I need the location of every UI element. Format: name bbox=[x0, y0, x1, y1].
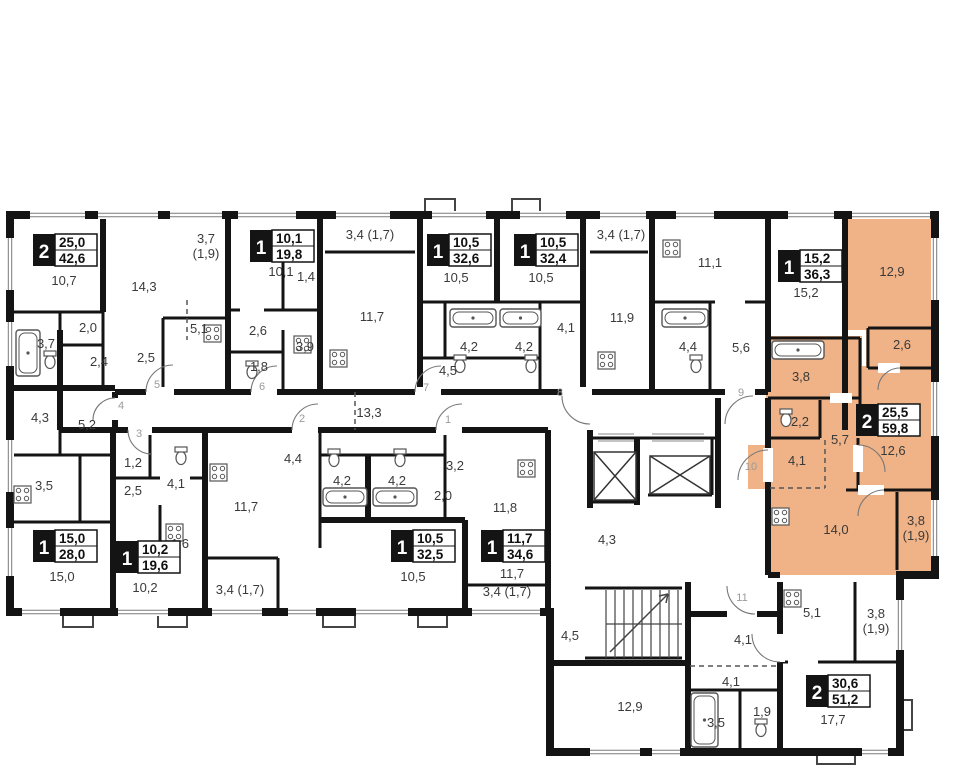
apartment-living-area: 30,6 bbox=[832, 676, 859, 691]
room-area-label: 11,7 bbox=[234, 499, 258, 514]
door-number-label: 5 bbox=[154, 379, 160, 391]
bathtub-icon bbox=[373, 488, 417, 506]
door-number-label: 4 bbox=[118, 400, 124, 412]
apartment-living-area: 10,2 bbox=[142, 542, 168, 557]
room-area-label: 12,9 bbox=[879, 264, 904, 279]
room-area-label: 4,2 bbox=[460, 339, 478, 354]
room-area-label: 4,3 bbox=[598, 532, 616, 547]
apartment-total-area: 32,5 bbox=[417, 547, 444, 562]
apartment-living-area: 10,5 bbox=[417, 531, 444, 546]
toilet-icon bbox=[175, 447, 187, 465]
apartment-badge[interactable]: 225,559,8 bbox=[856, 404, 920, 436]
room-area-label: 3,8 bbox=[792, 369, 810, 384]
room-area-label: 10,5 bbox=[443, 270, 468, 285]
apartment-living-area: 10,5 bbox=[453, 235, 480, 250]
apartment-total-area: 32,6 bbox=[453, 251, 480, 266]
room-area-label: 15,0 bbox=[49, 569, 74, 584]
bathtub-icon bbox=[450, 309, 496, 327]
room-area-label: 3,9 bbox=[296, 339, 314, 354]
room-area-label: 14,0 bbox=[823, 522, 848, 537]
apartment-rooms-count: 2 bbox=[39, 242, 50, 263]
apartment-badge[interactable]: 110,219,6 bbox=[116, 541, 180, 573]
apartment-living-area: 25,0 bbox=[59, 235, 85, 250]
room-area-label: 5,1 bbox=[190, 321, 208, 336]
apartment-total-area: 19,8 bbox=[276, 247, 303, 262]
room-area-label: 1,4 bbox=[297, 269, 315, 284]
apartment-living-area: 25,5 bbox=[882, 405, 909, 420]
bathtub-icon bbox=[772, 341, 824, 359]
apartment-rooms-count: 1 bbox=[39, 538, 50, 559]
room-area-label: 2,2 bbox=[791, 414, 809, 429]
room-area-label: 3,7 bbox=[37, 336, 55, 351]
room-area-label: 3,2 bbox=[446, 458, 464, 473]
apartment-rooms-count: 1 bbox=[397, 538, 408, 559]
room-area-label: 4,4 bbox=[679, 339, 697, 354]
room-area-label: 11,1 bbox=[698, 255, 722, 270]
room-area-label: 3,4 (1,7) bbox=[216, 582, 264, 597]
room-area-label: 4,4 bbox=[284, 451, 302, 466]
door-number-label: 1 bbox=[445, 414, 451, 426]
room-area-label: 2,5 bbox=[137, 350, 155, 365]
room-area-label: 3,4 (1,7) bbox=[597, 227, 645, 242]
apartment-living-area: 11,7 bbox=[507, 531, 533, 546]
room-area-label: 10,5 bbox=[400, 569, 425, 584]
bathtub-icon bbox=[662, 309, 708, 327]
door-number-label: 3 bbox=[136, 428, 142, 440]
room-area-label: 11,8 bbox=[493, 500, 517, 515]
room-area-label: 4,5 bbox=[561, 628, 579, 643]
apartment-living-area: 15,2 bbox=[804, 251, 830, 266]
bathtub-icon bbox=[323, 488, 367, 506]
room-area-label: 2,6 bbox=[249, 323, 267, 338]
apartment-living-area: 10,5 bbox=[540, 235, 567, 250]
apartment-rooms-count: 1 bbox=[122, 549, 133, 570]
apartment-badge[interactable]: 110,119,8 bbox=[250, 230, 314, 262]
apartment-total-area: 34,6 bbox=[507, 547, 534, 562]
room-area-label: 3,4 (1,7) bbox=[346, 227, 394, 242]
apartment-rooms-count: 1 bbox=[487, 538, 498, 559]
room-area-label: 3,5 bbox=[707, 715, 725, 730]
apartment-badge[interactable]: 110,532,5 bbox=[391, 530, 455, 562]
apartment-total-area: 28,0 bbox=[59, 547, 85, 562]
room-area-label: 10,2 bbox=[132, 580, 157, 595]
room-area-label: 13,3 bbox=[356, 405, 381, 420]
bathtub-icon bbox=[500, 309, 541, 327]
apartment-living-area: 15,0 bbox=[59, 531, 85, 546]
door-number-label: 6 bbox=[259, 381, 265, 393]
room-area-label: 10,1 bbox=[268, 264, 293, 279]
door-number-label: 11 bbox=[736, 592, 747, 604]
stove-icon bbox=[210, 464, 227, 481]
apartment-badge[interactable]: 110,532,6 bbox=[427, 234, 491, 266]
apartment-badge[interactable]: 110,532,4 bbox=[514, 234, 578, 266]
room-area-label: 3,8(1,9) bbox=[863, 606, 890, 636]
toilet-icon bbox=[690, 355, 702, 373]
stove-icon bbox=[330, 350, 347, 367]
room-area-label: 4,1 bbox=[557, 320, 575, 335]
room-area-label: 4,3 bbox=[31, 410, 49, 425]
room-area-label: 1,8 bbox=[250, 359, 268, 374]
apartment-total-area: 36,3 bbox=[804, 267, 831, 282]
room-area-label: 2,0 bbox=[79, 320, 97, 335]
room-area-label: 2,0 bbox=[434, 488, 452, 503]
apartment-rooms-count: 2 bbox=[862, 412, 873, 433]
room-area-label: 3,5 bbox=[35, 478, 53, 493]
floor-plan-canvas: 10,714,33,7(1,9)2,03,72,42,55,110,11,42,… bbox=[0, 0, 960, 780]
door-number-label: 10 bbox=[745, 461, 757, 473]
apartment-total-area: 19,6 bbox=[142, 558, 169, 573]
toilet-icon bbox=[755, 719, 767, 737]
room-area-label: 2,6 bbox=[893, 337, 911, 352]
room-area-label: 5,6 bbox=[732, 340, 750, 355]
room-area-label: 12,6 bbox=[880, 443, 905, 458]
apartment-rooms-count: 2 bbox=[812, 683, 823, 704]
toilet-icon bbox=[328, 449, 340, 467]
room-area-label: 10,7 bbox=[51, 273, 76, 288]
apartment-badge[interactable]: 230,651,2 bbox=[806, 675, 870, 707]
room-area-label: 4,1 bbox=[788, 453, 806, 468]
room-area-label: 2,5 bbox=[124, 483, 142, 498]
stove-icon bbox=[14, 486, 31, 503]
room-area-label: 10,5 bbox=[528, 270, 553, 285]
room-area-label: 4,1 bbox=[167, 476, 185, 491]
stove-icon bbox=[772, 508, 789, 525]
room-area-label: 2,4 bbox=[90, 354, 108, 369]
elevator-icon bbox=[594, 434, 710, 500]
stove-icon bbox=[663, 240, 680, 257]
room-area-label: 11,7 bbox=[500, 566, 524, 581]
stove-icon bbox=[598, 352, 615, 369]
room-area-label: 5,7 bbox=[831, 432, 849, 447]
door-number-label: 2 bbox=[299, 413, 305, 425]
apartment-badge[interactable]: 115,236,3 bbox=[778, 250, 842, 282]
room-area-label: 4,2 bbox=[333, 473, 351, 488]
apartment-total-area: 42,6 bbox=[59, 251, 86, 266]
apartment-badge[interactable]: 111,734,6 bbox=[481, 530, 545, 562]
stove-icon bbox=[518, 460, 535, 477]
room-area-label: 12,9 bbox=[617, 699, 642, 714]
apartment-rooms-count: 1 bbox=[520, 242, 531, 263]
room-area-label: 4,2 bbox=[388, 473, 406, 488]
floor-plan-page: 10,714,33,7(1,9)2,03,72,42,55,110,11,42,… bbox=[0, 0, 960, 780]
apartment-rooms-count: 1 bbox=[433, 242, 444, 263]
room-area-label: 3,4 (1,7) bbox=[483, 584, 531, 599]
room-area-label: 5,2 bbox=[78, 417, 96, 432]
room-area-label: 11,7 bbox=[360, 309, 384, 324]
apartment-badge[interactable]: 225,042,6 bbox=[33, 234, 97, 266]
room-area-label: 4,5 bbox=[439, 363, 457, 378]
room-area-label: 11,9 bbox=[610, 310, 634, 325]
room-area-label: 4,2 bbox=[515, 339, 533, 354]
room-area-label: 1,9 bbox=[753, 704, 771, 719]
stairs-icon bbox=[606, 590, 682, 658]
room-area-label: 17,7 bbox=[820, 712, 845, 727]
apartment-rooms-count: 1 bbox=[784, 258, 795, 279]
toilet-icon bbox=[525, 355, 537, 373]
apartment-total-area: 51,2 bbox=[832, 692, 858, 707]
apartment-living-area: 10,1 bbox=[276, 231, 303, 246]
stove-icon bbox=[784, 590, 801, 607]
room-area-label: 5,1 bbox=[803, 605, 821, 620]
apartment-total-area: 32,4 bbox=[540, 251, 567, 266]
room-area-label: 14,3 bbox=[131, 279, 156, 294]
room-area-label: 4,1 bbox=[722, 674, 740, 689]
room-area-label: 1,2 bbox=[124, 455, 142, 470]
door-number-label: 9 bbox=[738, 387, 744, 399]
toilet-icon bbox=[44, 351, 56, 369]
room-area-label: 4,1 bbox=[734, 632, 752, 647]
door-number-label: 7 bbox=[423, 382, 429, 394]
apartment-total-area: 59,8 bbox=[882, 421, 909, 436]
room-area-label: 15,2 bbox=[793, 285, 818, 300]
apartment-badge[interactable]: 115,028,0 bbox=[33, 530, 97, 562]
room-area-label: 3,7(1,9) bbox=[193, 231, 220, 261]
door-number-label: 8 bbox=[557, 387, 563, 399]
toilet-icon bbox=[394, 449, 406, 467]
apartment-rooms-count: 1 bbox=[256, 238, 267, 259]
